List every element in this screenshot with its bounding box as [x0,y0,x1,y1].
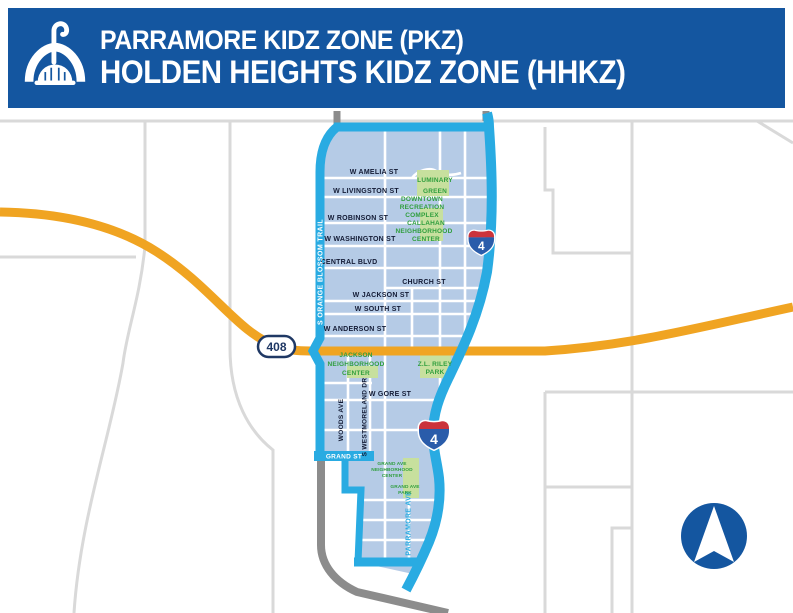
place-line: GRAND AVE [377,461,407,467]
banner-titles: PARRAMORE KIDZ ZONE (PKZ) HOLDEN HEIGHTS… [100,25,625,91]
street-label-anderson: W ANDERSON ST [324,326,387,333]
place-line: CENTER [412,236,440,243]
place-line: PARK [426,369,445,376]
north-compass-icon [681,503,747,569]
interstate-4-number-upper: 4 [478,239,485,253]
place-line: Z.L. RILEY [418,361,453,368]
banner-title-line1: PARRAMORE KIDZ ZONE (PKZ) [100,25,625,55]
place-line: NEIGHBORHOOD [328,361,385,368]
street-label-central: CENTRAL BLVD [321,259,378,266]
interstate-4-number-lower: 4 [430,431,438,447]
street-label-orange-blossom-trail: S ORANGE BLOSSOM TRAIL [318,219,325,325]
toll-408-shield: 408 [258,336,295,357]
street-label-livingston: W LIVINGSTON ST [333,188,399,195]
place-line: COMPLEX [405,212,439,219]
street-label-gore: W GORE ST [369,391,412,398]
street-label-grand: GRAND ST [326,454,362,461]
street-label-robinson: W ROBINSON ST [328,215,389,222]
place-line: GREEN [423,188,447,195]
title-banner: PARRAMORE KIDZ ZONE (PKZ) HOLDEN HEIGHTS… [8,8,785,108]
banner-title-line2: HOLDEN HEIGHTS KIDZ ZONE (HHKZ) [100,55,625,91]
map-poster: 408 4 4 W AMELIA ST W LIVINGSTON ST W RO… [0,0,793,613]
toll-408-label: 408 [266,340,286,354]
place-line: CENTER [342,370,370,377]
place-line: NEIGHBORHOOD [396,228,453,235]
street-label-westmoreland: S WESTMORELAND DR [362,378,369,457]
street-label-amelia: W AMELIA ST [350,169,399,176]
place-downtown-recreation-complex: DOWNTOWN RECREATION COMPLEX [400,196,445,219]
street-label-jackson-st: W JACKSON ST [353,292,410,299]
city-fountain-icon [24,17,86,99]
place-line: CALLAHAN [407,220,445,227]
street-label-south: W SOUTH ST [355,306,402,313]
street-label-church: CHURCH ST [402,279,446,286]
street-label-woods-ave: WOODS AVE [338,398,345,441]
place-line: LUMINARY [417,177,453,184]
place-line: JACKSON [339,352,372,359]
place-line: CENTER [382,473,403,479]
street-label-washington: W WASHINGTON ST [324,236,396,243]
place-line: NEIGHBORHOOD [371,467,413,473]
map-canvas: 408 4 4 W AMELIA ST W LIVINGSTON ST W RO… [0,110,793,613]
place-line: DOWNTOWN [401,196,443,203]
place-line: PARK [398,490,412,496]
place-line: GRAND AVE [390,484,420,490]
place-line: RECREATION [400,204,445,211]
street-label-parramore-ave: S PARRAMORE AVE [406,491,413,563]
